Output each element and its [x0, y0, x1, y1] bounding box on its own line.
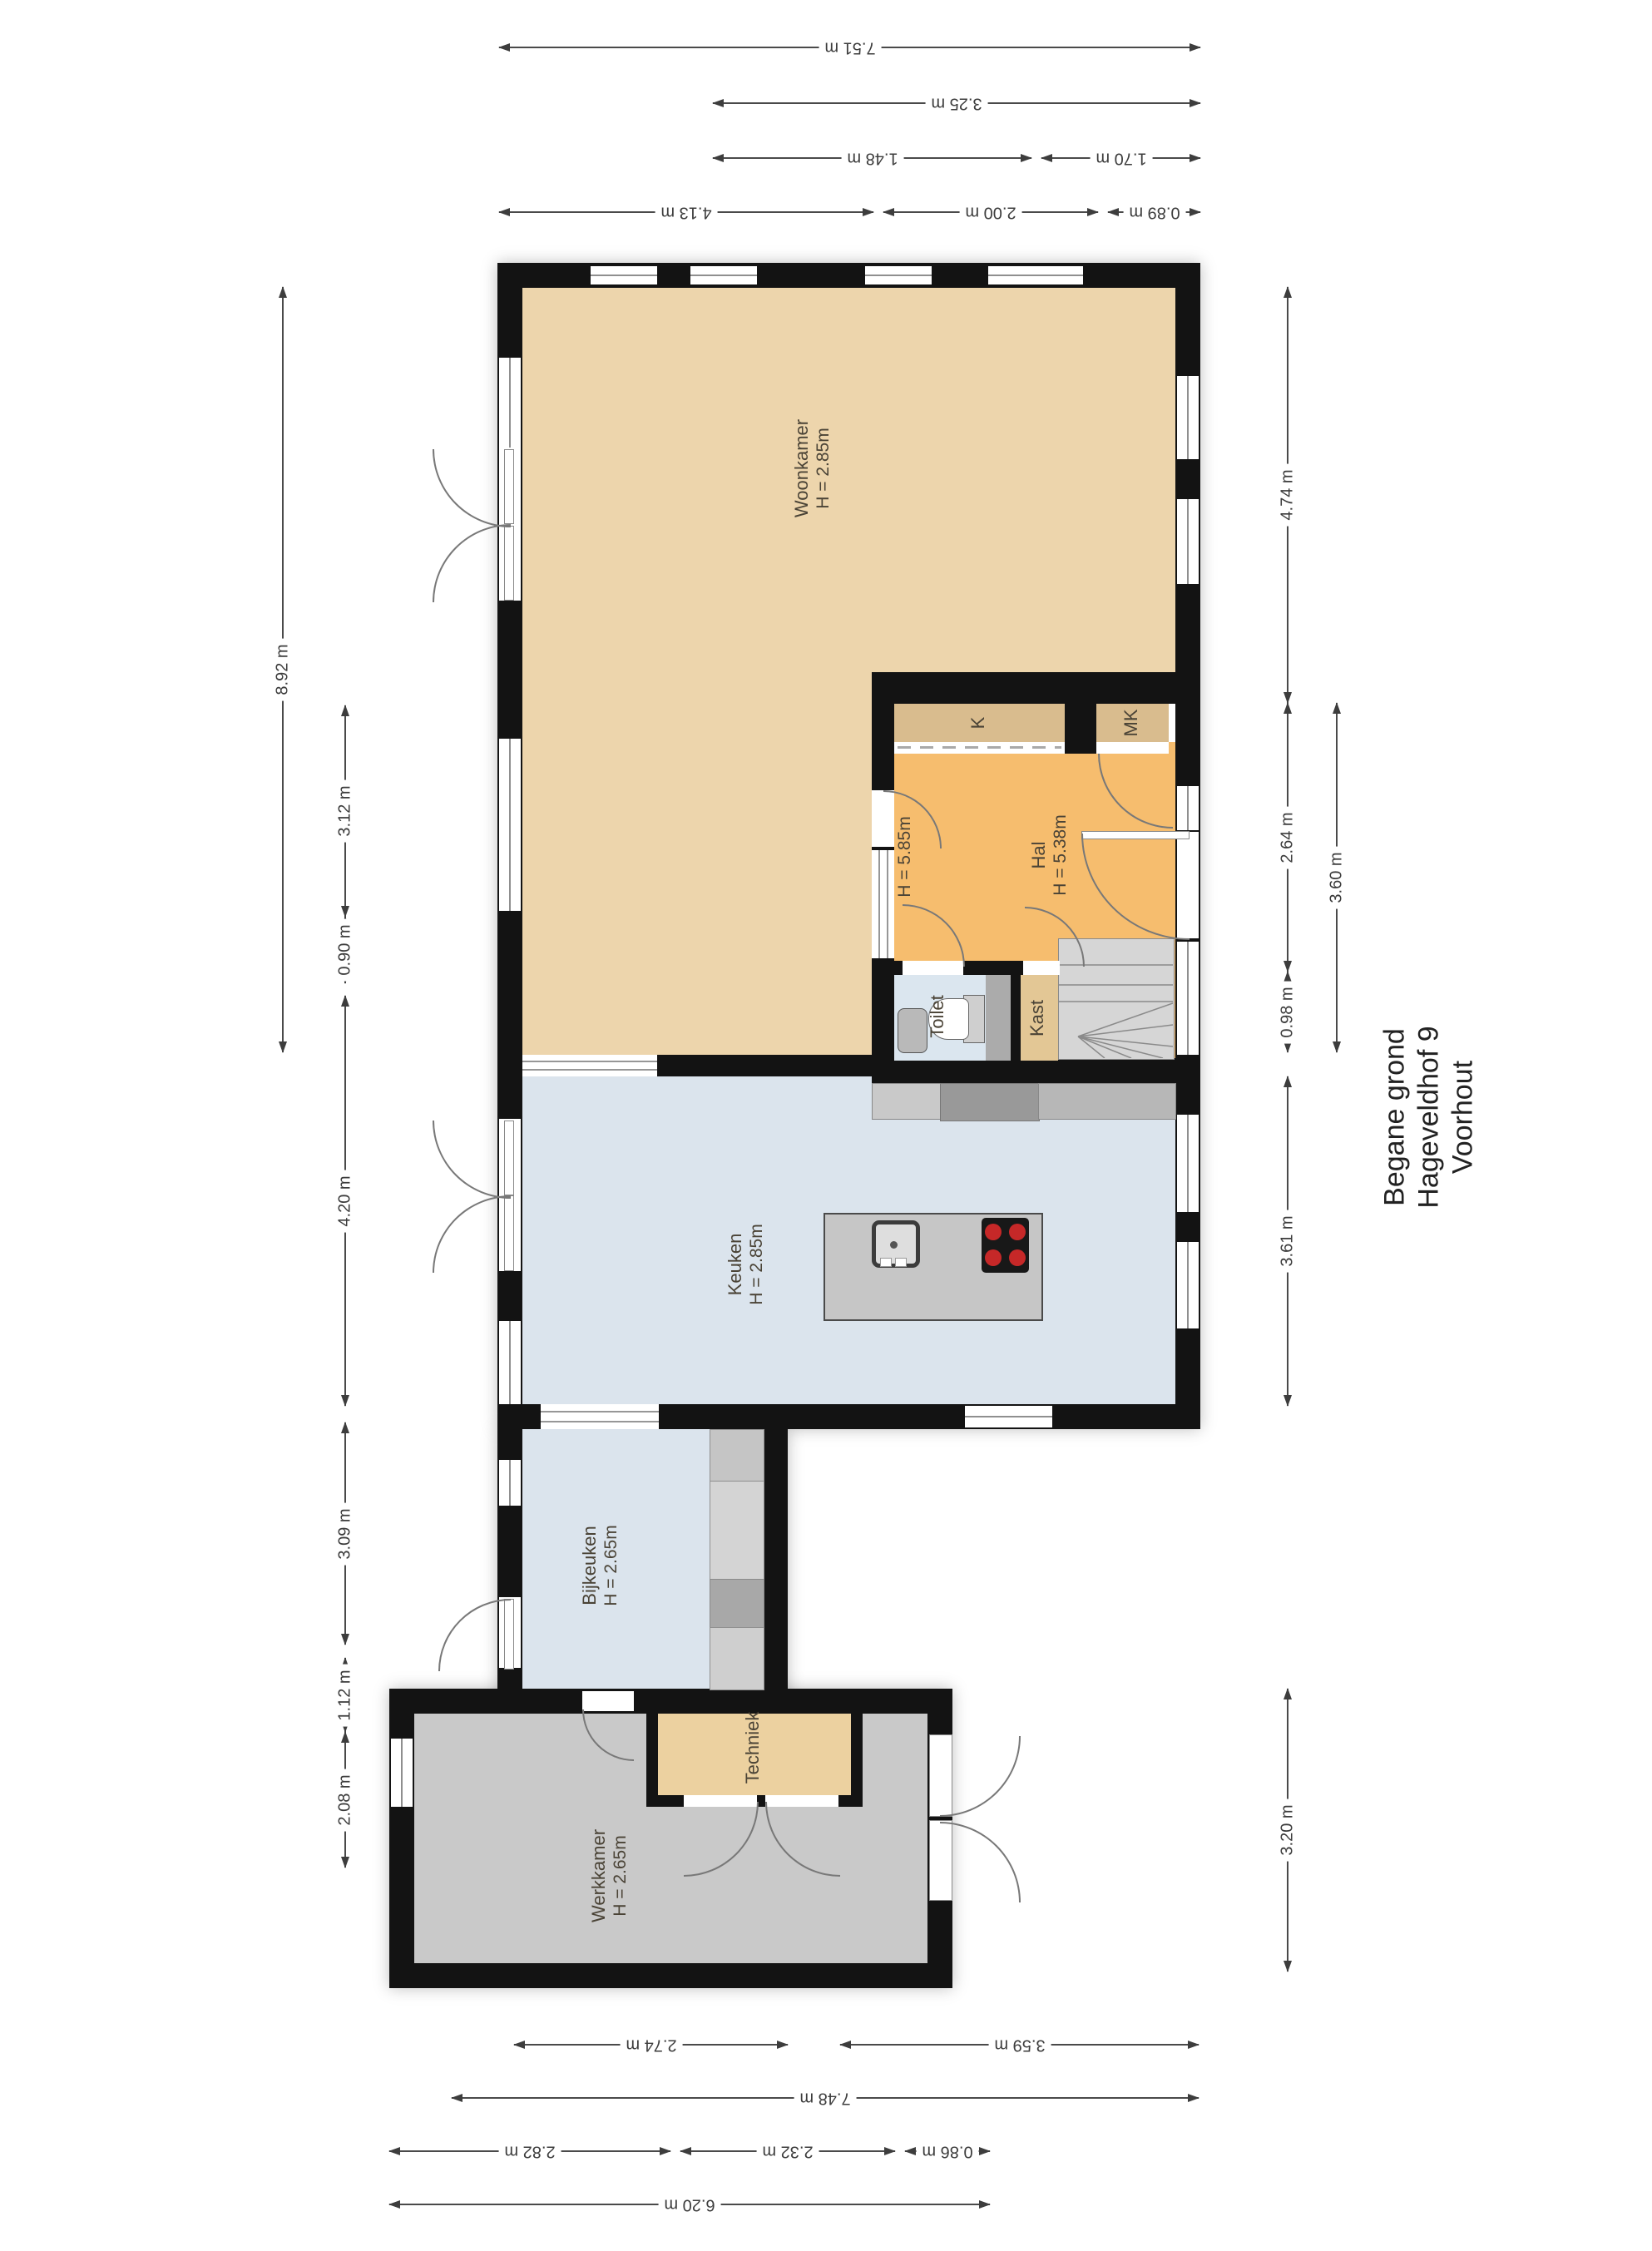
door-arc	[433, 524, 511, 602]
window	[591, 266, 657, 284]
dimension-2.08m: 2.08 m	[337, 1732, 354, 1868]
arrow-up-icon	[1284, 1076, 1292, 1087]
dimension-3.60m: 3.60 m	[1328, 703, 1345, 1052]
dimension-0.98m: 0.98 m	[1279, 972, 1296, 1052]
arrow-up-icon	[279, 286, 287, 298]
arrow-left-icon	[904, 2147, 916, 2155]
dimension-label: 1.70 m	[1090, 148, 1152, 169]
room-label-kast: Kast	[1026, 1000, 1048, 1036]
dimension-label: 2.32 m	[756, 2141, 819, 2162]
kitchen-appliance	[940, 1083, 1040, 1121]
dimension-label: 7.51 m	[819, 37, 881, 58]
dimension-label: 2.08 m	[335, 1769, 356, 1831]
wall	[1065, 704, 1096, 754]
sliding-door	[894, 742, 1065, 754]
arrow-left-icon	[513, 2041, 525, 2049]
plan-title-line: Voorhout	[1447, 1026, 1481, 1208]
arrow-right-icon	[1190, 43, 1201, 52]
room-label-mk: MK	[1120, 710, 1142, 737]
dimension-0.90m: 0.90 m	[337, 917, 354, 983]
arrow-down-icon	[1284, 1395, 1292, 1407]
appliance	[710, 1481, 764, 1581]
arrow-left-icon	[388, 2147, 400, 2155]
wall	[646, 1714, 658, 1807]
door-opening	[1096, 742, 1169, 754]
toilet-sink	[898, 1008, 927, 1053]
room-name: Keuken	[725, 1224, 746, 1304]
window	[1177, 1242, 1199, 1328]
burner-icon	[985, 1224, 1002, 1240]
arrow-up-icon	[341, 1731, 349, 1743]
dimension-3.25m: 3.25 m	[713, 95, 1200, 111]
window	[499, 358, 521, 448]
plan-title-line: Hageveldhof 9	[1412, 1026, 1447, 1208]
dimension-label: 4.20 m	[335, 1170, 356, 1232]
floor-woonkamer	[522, 288, 1175, 674]
arrow-down-icon	[1333, 1041, 1341, 1053]
window	[865, 266, 932, 284]
window	[965, 1406, 1052, 1427]
wall	[851, 1714, 863, 1807]
arrow-right-icon	[777, 2041, 789, 2049]
arrow-left-icon	[388, 2200, 400, 2209]
arrow-up-icon	[1284, 702, 1292, 714]
arrow-right-icon	[884, 2147, 896, 2155]
room-name: MK	[1120, 710, 1142, 737]
dimension-label: 3.59 m	[988, 2035, 1051, 2056]
dimension-3.09m: 3.09 m	[337, 1422, 354, 1645]
window	[499, 1321, 521, 1404]
floor-plan-page: WoonkamerH = 2.85mH = 5.85mHalH = 5.38mK…	[0, 0, 1652, 2251]
dimension-label: 2.64 m	[1278, 806, 1298, 868]
room-name: K	[967, 717, 989, 730]
counter	[710, 1429, 764, 1482]
dimension-1.12m: 1.12 m	[337, 1658, 354, 1732]
dimension-7.48m: 7.48 m	[452, 2090, 1199, 2106]
dimension-label: 2.00 m	[959, 202, 1021, 223]
room-label-height: H = 5.85m	[894, 816, 916, 897]
arrow-left-icon	[883, 208, 894, 216]
glass-partition	[872, 850, 894, 958]
arrow-left-icon	[839, 2041, 851, 2049]
arrow-down-icon	[279, 1041, 287, 1053]
dimension-3.61m: 3.61 m	[1279, 1076, 1296, 1406]
dimension-6.20m: 6.20 m	[389, 2196, 990, 2213]
arrow-left-icon	[712, 99, 724, 107]
sliding-door	[522, 1055, 657, 1076]
wall	[872, 672, 1175, 704]
arrow-right-icon	[1190, 208, 1201, 216]
dimension-0.89m: 0.89 m	[1108, 204, 1200, 220]
dimension-label: 3.60 m	[1327, 846, 1348, 908]
wall	[389, 1689, 414, 1988]
dimension-2.00m: 2.00 m	[883, 204, 1098, 220]
arrow-down-icon	[341, 1395, 349, 1407]
arrow-right-icon	[979, 2200, 991, 2209]
arrow-left-icon	[498, 43, 510, 52]
room-height: H = 2.65m	[610, 1829, 631, 1922]
room-height: H = 2.85m	[813, 419, 834, 517]
dimension-7.51m: 7.51 m	[499, 39, 1200, 56]
dimension-8.92m: 8.92 m	[275, 287, 291, 1052]
wall	[872, 1058, 1175, 1083]
window	[499, 1460, 521, 1506]
door-arc	[438, 1599, 511, 1671]
faucet-icon	[890, 1241, 898, 1249]
appliance	[710, 1579, 764, 1629]
dimension-label: 3.61 m	[1278, 1210, 1298, 1272]
toilet-partition	[986, 975, 1011, 1061]
door-opening	[582, 1691, 634, 1711]
arrow-up-icon	[1333, 702, 1341, 714]
kitchen-counter	[1038, 1083, 1176, 1120]
dimension-1.70m: 1.70 m	[1041, 150, 1200, 166]
arrow-left-icon	[498, 208, 510, 216]
arrow-left-icon	[1107, 208, 1119, 216]
dimension-2.74m: 2.74 m	[514, 2036, 788, 2053]
arrow-up-icon	[1284, 1688, 1292, 1699]
dimension-3.59m: 3.59 m	[840, 2036, 1199, 2053]
arrow-left-icon	[451, 2094, 462, 2102]
counter	[710, 1627, 764, 1690]
dimension-2.82m: 2.82 m	[389, 2143, 670, 2159]
arrow-up-icon	[341, 1422, 349, 1433]
dimension-label: 3.12 m	[335, 779, 356, 842]
room-name: Werkkamer	[588, 1829, 610, 1922]
dimension-label: 4.13 m	[655, 202, 717, 223]
room-height: H = 2.65m	[601, 1525, 622, 1605]
room-name: Kast	[1026, 1000, 1048, 1036]
room-label-techniek: Techniek	[742, 1712, 764, 1784]
arrow-right-icon	[1021, 154, 1032, 162]
arrow-right-icon	[1188, 2094, 1199, 2102]
window	[391, 1739, 413, 1807]
dimension-2.32m: 2.32 m	[680, 2143, 895, 2159]
arrow-right-icon	[1188, 2041, 1199, 2049]
window	[499, 739, 521, 911]
room-label-toilet: Toilet	[927, 995, 948, 1037]
arrow-left-icon	[680, 2147, 691, 2155]
room-label-hal: HalH = 5.38m	[1028, 814, 1071, 895]
room-name: Bijkeuken	[579, 1525, 601, 1605]
dimension-4.13m: 4.13 m	[499, 204, 873, 220]
plan-title-line: Begane grond	[1378, 1026, 1412, 1208]
room-name: Hal	[1028, 814, 1050, 895]
room-height: H = 2.85m	[746, 1224, 768, 1304]
room-label-bijkeuken: BijkeukenH = 2.65m	[579, 1525, 622, 1605]
arrow-up-icon	[341, 705, 349, 716]
plan-title: Begane grondHageveldhof 9Voorhout	[1378, 1026, 1481, 1208]
dimension-label: 2.82 m	[498, 2141, 561, 2162]
arrow-up-icon	[341, 995, 349, 1007]
dimension-label: 3.20 m	[1278, 1798, 1298, 1861]
door-arc	[433, 1121, 511, 1199]
arrow-right-icon	[979, 2147, 991, 2155]
window	[988, 266, 1083, 284]
arrow-up-icon	[1284, 286, 1292, 298]
dimension-label: 0.98 m	[1278, 981, 1298, 1043]
sink-handle	[880, 1258, 892, 1267]
dimension-4.74m: 4.74 m	[1279, 287, 1296, 703]
dimension-label: 6.20 m	[658, 2194, 720, 2215]
arrow-left-icon	[1041, 154, 1052, 162]
arrow-down-icon	[341, 1857, 349, 1868]
dimension-label: 0.86 m	[916, 2141, 978, 2162]
dimension-label: 2.74 m	[620, 2035, 682, 2056]
window	[1177, 499, 1199, 584]
door-arc	[433, 1195, 511, 1273]
window	[690, 266, 757, 284]
window	[1177, 786, 1199, 830]
room-name: Techniek	[742, 1712, 764, 1784]
sliding-door	[541, 1404, 659, 1429]
dimension-label: 7.48 m	[794, 2088, 856, 2109]
floor-woonkamer	[522, 674, 872, 1055]
room-label-woonkamer: WoonkamerH = 2.85m	[791, 419, 834, 517]
window	[1177, 376, 1199, 459]
sink-handle	[895, 1258, 907, 1267]
room-label-k: K	[967, 717, 989, 730]
arrow-right-icon	[1190, 99, 1201, 107]
arrow-down-icon	[341, 1634, 349, 1645]
burner-icon	[1009, 1249, 1026, 1266]
dimension-label: 3.09 m	[335, 1502, 356, 1565]
kitchen-counter	[872, 1083, 942, 1120]
dimension-label: 3.25 m	[925, 93, 987, 114]
arrow-right-icon	[1087, 208, 1099, 216]
room-label-keuken: KeukenH = 2.85m	[725, 1224, 768, 1304]
arrow-left-icon	[712, 154, 724, 162]
dimension-3.12m: 3.12 m	[337, 705, 354, 917]
burner-icon	[1009, 1224, 1026, 1240]
burner-icon	[985, 1249, 1002, 1266]
room-label-werkkamer: WerkkamerH = 2.65m	[588, 1829, 631, 1922]
room-name: Toilet	[927, 995, 948, 1037]
dimension-label: 1.48 m	[841, 148, 903, 169]
arrow-right-icon	[660, 2147, 671, 2155]
wall	[389, 1689, 952, 1714]
dimension-3.20m: 3.20 m	[1279, 1689, 1296, 1971]
door-arc	[433, 449, 511, 527]
dimension-label: 4.74 m	[1278, 463, 1298, 526]
arrow-right-icon	[863, 208, 874, 216]
wall	[1011, 961, 1021, 1065]
dimension-label: 1.12 m	[335, 1664, 356, 1726]
arrow-down-icon	[1284, 1961, 1292, 1972]
wall	[389, 1963, 952, 1988]
room-height: H = 5.85m	[894, 816, 916, 897]
room-height: H = 5.38m	[1050, 814, 1071, 895]
window	[1177, 1115, 1199, 1212]
dimension-label: 0.89 m	[1123, 202, 1185, 223]
wall	[763, 1429, 788, 1714]
dimension-1.48m: 1.48 m	[713, 150, 1031, 166]
dimension-label: 0.90 m	[335, 918, 356, 981]
door-arc	[940, 1822, 1021, 1902]
dimension-label: 8.92 m	[273, 638, 294, 700]
dimension-0.86m: 0.86 m	[905, 2143, 990, 2159]
room-name: Woonkamer	[791, 419, 813, 517]
dimension-4.20m: 4.20 m	[337, 996, 354, 1406]
dimension-2.64m: 2.64 m	[1279, 703, 1296, 972]
arrow-right-icon	[1190, 154, 1201, 162]
window	[1177, 942, 1199, 1055]
door-arc	[940, 1736, 1021, 1817]
